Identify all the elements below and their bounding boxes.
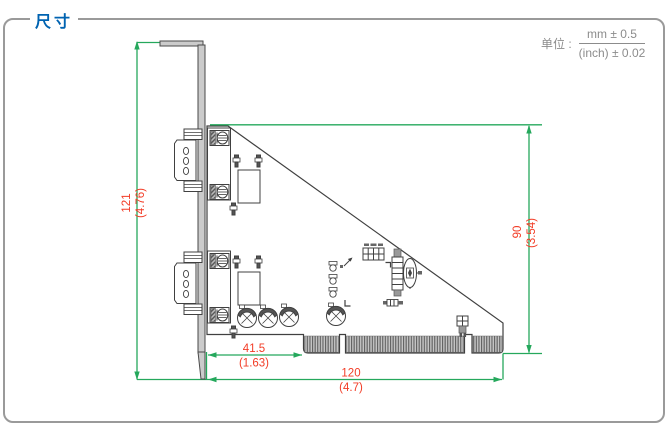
dim-121-inch: (4.76) <box>135 188 147 218</box>
dim-120-mm: 120 <box>341 368 360 380</box>
dim-90-inch: (3.54) <box>526 218 538 248</box>
dim-41-5-inch: (1.63) <box>239 358 269 370</box>
dim-121-mm: 121 <box>121 193 133 212</box>
dimension-diagram-page: 尺寸 单位 : mm ± 0.5 (inch) ± 0.02 <box>0 0 670 427</box>
mounting-bracket <box>160 41 205 379</box>
dim-120-inch: (4.7) <box>339 382 363 394</box>
transformer-lower <box>238 272 260 305</box>
technical-drawing: 41.5 (1.63) 120 (4.7) 121 (4.76) 90 (3.5… <box>0 0 670 427</box>
ic-chip <box>363 244 384 261</box>
dim-41-5-mm: 41.5 <box>243 343 265 355</box>
transformer-upper <box>238 170 260 203</box>
dim-90-mm: 90 <box>512 226 524 239</box>
